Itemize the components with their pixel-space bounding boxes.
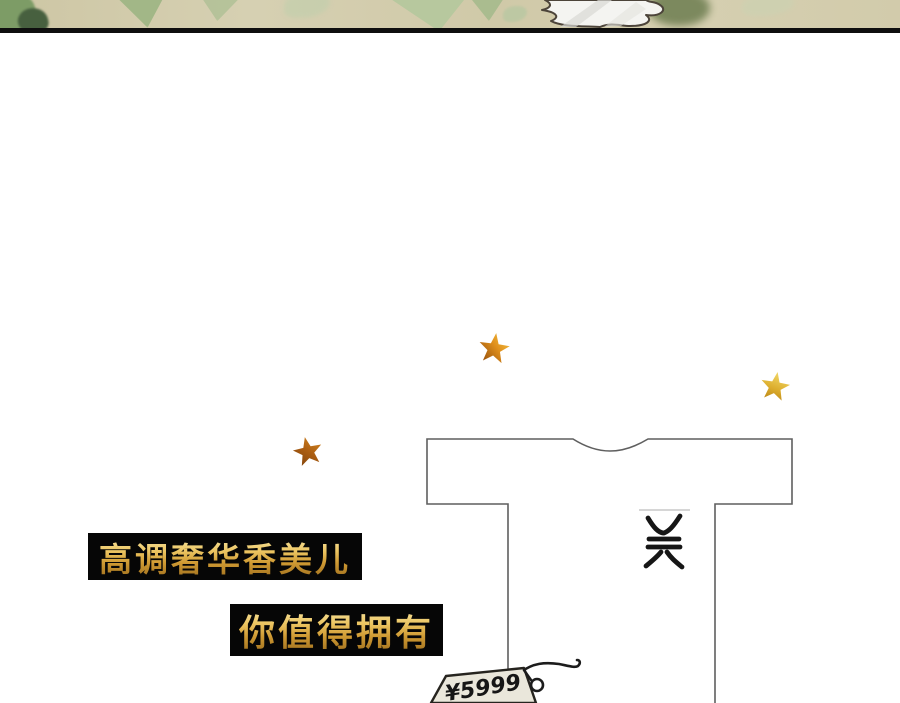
slogan-banner-1: 高调奢华香美儿 (88, 533, 362, 580)
slogan-banner-2: 你值得拥有 (230, 604, 443, 656)
comic-panel: ¥5999 高调奢华香美儿 你值得拥有 (0, 0, 900, 703)
illustration-layer: ¥5999 (0, 0, 900, 703)
tshirt-outline (427, 439, 792, 703)
tag-string-loop (531, 679, 543, 691)
star-icon (291, 434, 325, 467)
slogan-text-2: 你值得拥有 (239, 604, 434, 656)
star-icon (759, 370, 792, 402)
star-icon (477, 331, 511, 364)
slogan-text-1: 高调奢华香美儿 (99, 533, 351, 581)
